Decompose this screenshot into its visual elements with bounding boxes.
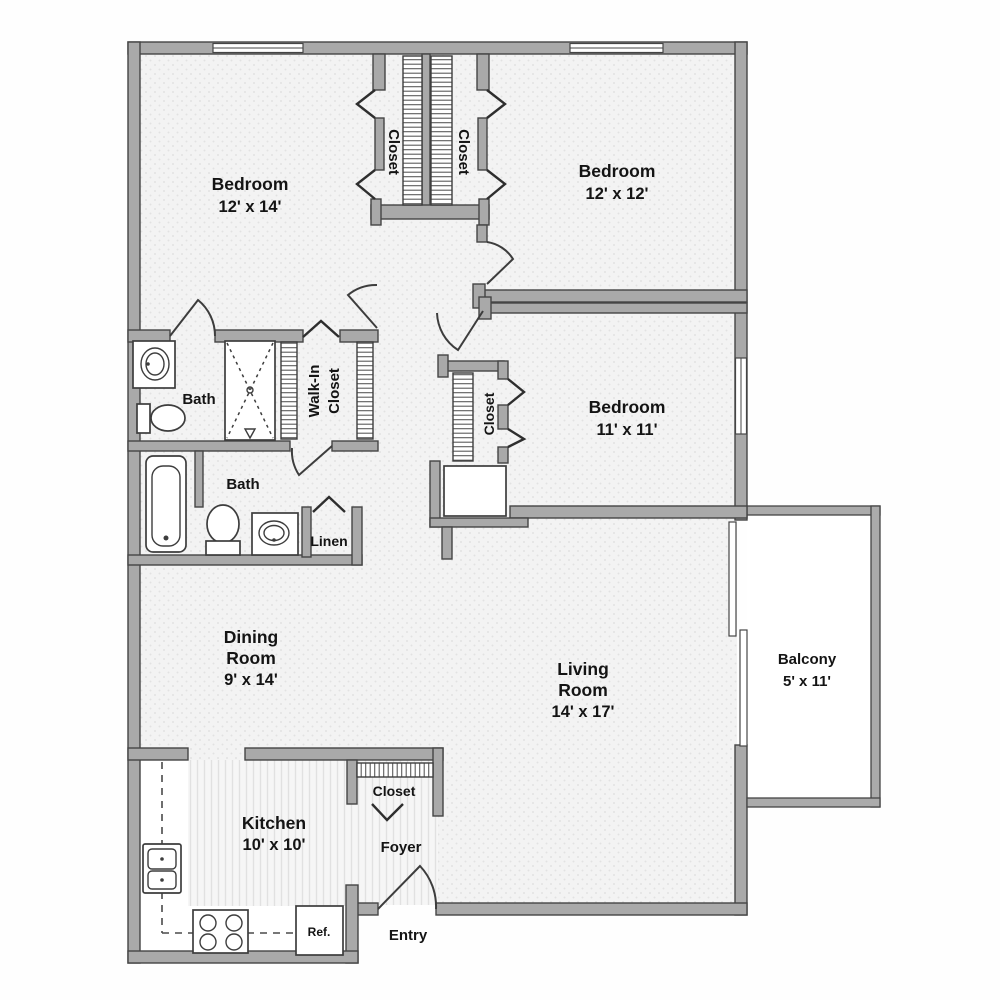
closet-wall <box>498 405 508 429</box>
sink-icon <box>252 513 298 555</box>
linen-label: Linen <box>310 533 347 549</box>
closet-right-label: Closet <box>455 129 472 175</box>
bedroom1-dims: 12' x 14' <box>219 198 282 216</box>
wall-cap <box>438 355 448 377</box>
bedroom1-label: Bedroom <box>212 174 289 194</box>
balcony-dims: 5' x 11' <box>783 673 831 690</box>
closet-wall <box>373 54 385 90</box>
walkin-wall-top <box>340 330 378 342</box>
room-living: Living Room 14' x 17' <box>552 659 615 721</box>
window-top-left <box>213 44 303 53</box>
window-top-right <box>570 44 663 53</box>
mech-wall-bottom <box>430 518 528 527</box>
floor-plan: Balcony 5' x 11' Closet Closet Bedroom 1… <box>0 0 1000 1000</box>
bedroom2-label: Bedroom <box>579 161 656 181</box>
wall-left <box>128 42 140 963</box>
kitchen-wall-top <box>245 748 443 760</box>
mech-wall-left <box>430 461 440 527</box>
closet-left-label: Closet <box>385 129 402 175</box>
closet-wall <box>498 447 508 463</box>
mech-wall-stub <box>442 527 452 559</box>
closet-wall <box>347 760 357 804</box>
mech-box <box>444 466 506 516</box>
tub-divider-wall <box>195 451 203 507</box>
closet-shelf-left <box>403 56 422 205</box>
wall-bottom-right <box>436 903 747 915</box>
window-bedroom3 <box>736 358 747 434</box>
bedroom2-wall-bottom <box>477 290 747 302</box>
shower-icon <box>225 341 275 440</box>
bath1-label: Bath <box>182 391 215 408</box>
foyer-floor <box>347 808 438 905</box>
linen-wall-left <box>302 507 311 557</box>
bedroom3-dims: 11' x 11' <box>596 421 657 439</box>
bedroom2-dims: 12' x 12' <box>586 185 649 203</box>
living-label-line1: Living <box>557 659 609 679</box>
balcony-label: Balcony <box>778 651 837 668</box>
closets-top: Closet Closet <box>357 54 505 225</box>
bathtub-icon <box>146 456 186 552</box>
balcony-wall-top <box>747 506 880 515</box>
closet-wall <box>478 118 487 170</box>
wall-right-upper <box>735 42 747 520</box>
bath2-wall-bottom <box>128 555 362 565</box>
wall-cap <box>479 199 489 225</box>
walkin-label-line1: Walk-In <box>306 365 323 418</box>
balcony-wall-bottom <box>747 798 880 807</box>
linen-wall-right <box>352 507 362 565</box>
closet-wall <box>433 748 443 816</box>
closet-wall <box>477 54 489 90</box>
closet-divider <box>422 54 430 216</box>
toilet-icon <box>137 404 185 433</box>
closet-wall <box>442 361 504 371</box>
sink-icon <box>133 341 175 388</box>
wall-cap <box>371 199 381 225</box>
closet-shelf <box>453 373 473 461</box>
living-dims: 14' x 17' <box>552 703 615 721</box>
refrigerator-label: Ref. <box>308 925 331 939</box>
stove-icon <box>193 910 248 953</box>
bath2-label: Bath <box>226 476 259 493</box>
walkin-label-line2: Closet <box>326 368 343 414</box>
closet-shelf <box>357 342 373 439</box>
closet-wall <box>498 361 508 379</box>
bedroom3-wall-bottom <box>510 506 747 518</box>
closet-shelf <box>357 763 433 777</box>
kitchen-label: Kitchen <box>242 813 306 833</box>
toilet-icon <box>206 505 240 555</box>
bedroom3-label: Bedroom <box>589 397 666 417</box>
refrigerator-icon: Ref. <box>296 906 343 955</box>
bath-divider-wall <box>128 441 290 451</box>
dining-label-line2: Room <box>226 648 276 668</box>
closet-shelf <box>281 342 297 439</box>
kitchen-sink-icon <box>143 844 181 893</box>
bath-divider-wall <box>332 441 378 451</box>
living-label-line2: Room <box>558 680 608 700</box>
floor-plan-svg: Balcony 5' x 11' Closet Closet Bedroom 1… <box>0 0 1000 1000</box>
wall-right-lower <box>735 745 747 915</box>
closet-wall <box>375 118 384 170</box>
kitchen-wall-top <box>128 748 188 760</box>
foyer-closet-label: Closet <box>373 783 416 799</box>
closet-wall-bottom <box>371 205 489 219</box>
room-dining: Dining Room 9' x 14' <box>224 627 278 689</box>
entry-label: Entry <box>389 927 428 944</box>
bedroom3-closet-label: Closet <box>481 392 497 435</box>
dining-dims: 9' x 14' <box>224 671 278 689</box>
bedroom2-wall-stub <box>477 225 487 242</box>
dining-label-line1: Dining <box>224 627 278 647</box>
bedroom3-wall-top <box>483 303 747 313</box>
foyer-label: Foyer <box>381 839 422 856</box>
kitchen-dims: 10' x 10' <box>243 836 306 854</box>
balcony-wall-right <box>871 506 880 807</box>
wall-entry-stub <box>356 903 378 915</box>
closet-shelf-right <box>431 56 452 205</box>
